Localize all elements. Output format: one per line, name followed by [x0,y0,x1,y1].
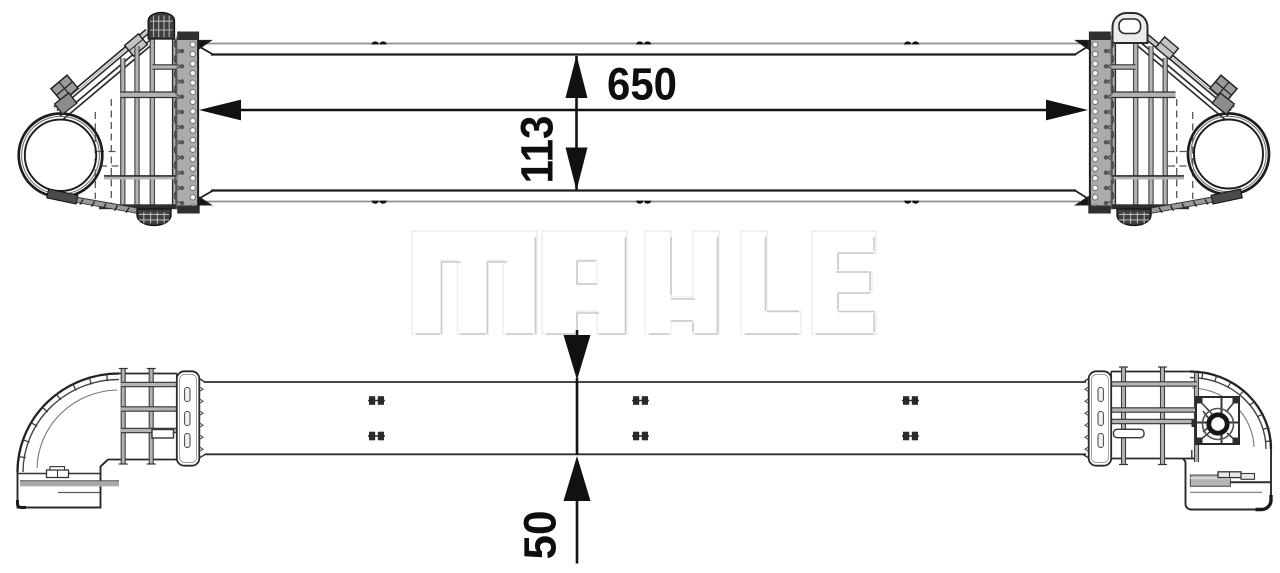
svg-text:650: 650 [607,59,677,110]
svg-text:113: 113 [512,116,563,184]
svg-text:50: 50 [515,511,566,560]
